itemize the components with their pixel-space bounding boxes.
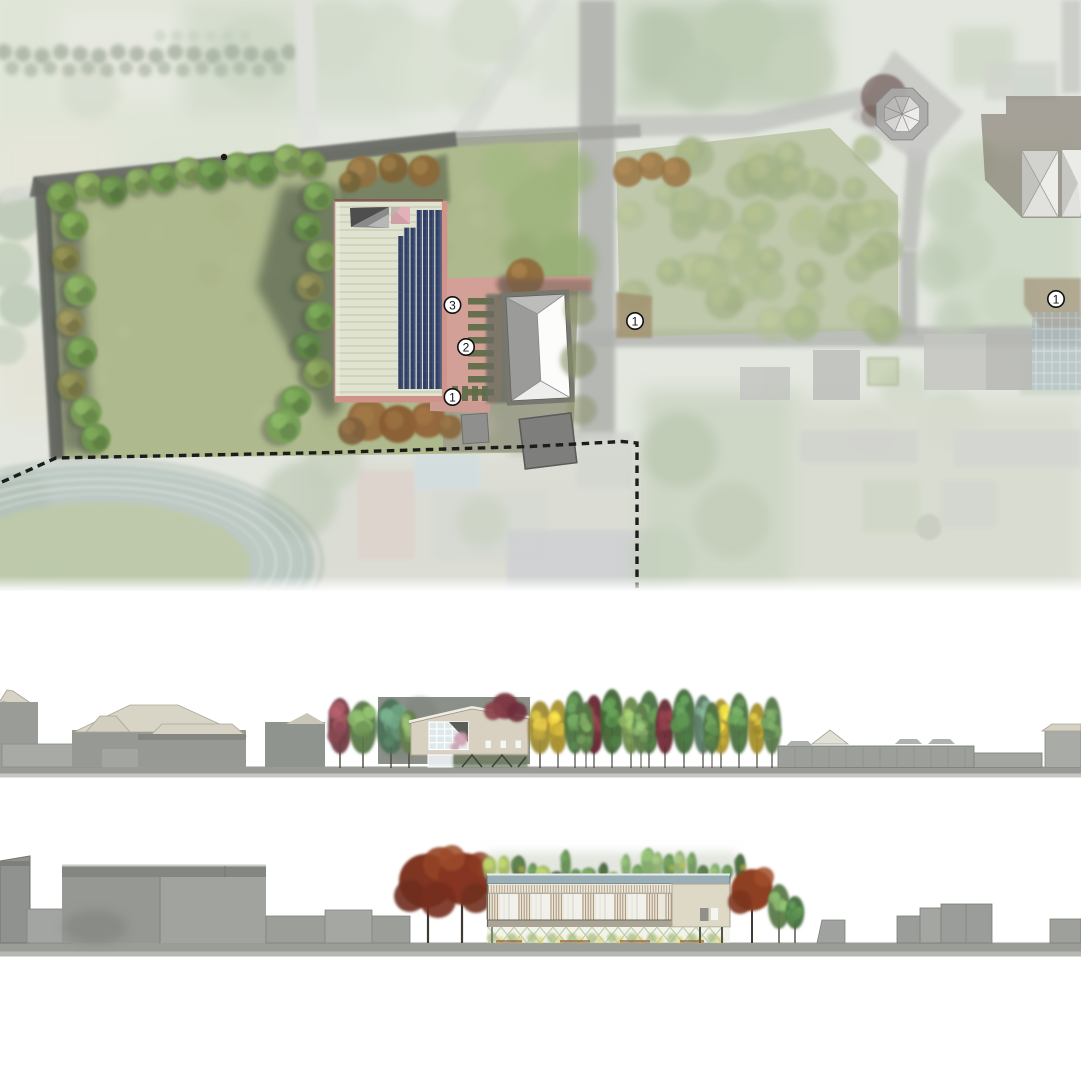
svg-text:1: 1 bbox=[449, 390, 456, 404]
svg-text:2: 2 bbox=[463, 340, 470, 354]
svg-text:1: 1 bbox=[632, 314, 639, 328]
svg-text:1: 1 bbox=[1053, 292, 1060, 306]
svg-text:3: 3 bbox=[449, 298, 456, 312]
